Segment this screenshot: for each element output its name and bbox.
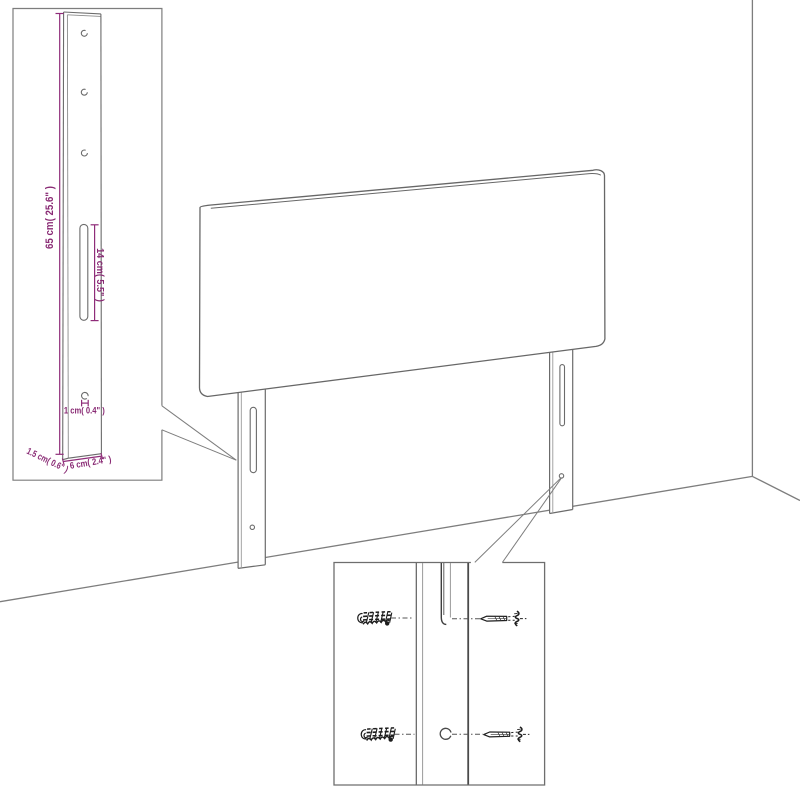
svg-text:6 cm( 2.4" ): 6 cm( 2.4" ) xyxy=(69,453,112,471)
svg-text:65 cm( 25.6" ): 65 cm( 25.6" ) xyxy=(45,186,57,249)
svg-text:14 cm( 5.5" ): 14 cm( 5.5" ) xyxy=(94,248,106,302)
svg-text:1 cm( 0.4" ): 1 cm( 0.4" ) xyxy=(64,405,105,416)
